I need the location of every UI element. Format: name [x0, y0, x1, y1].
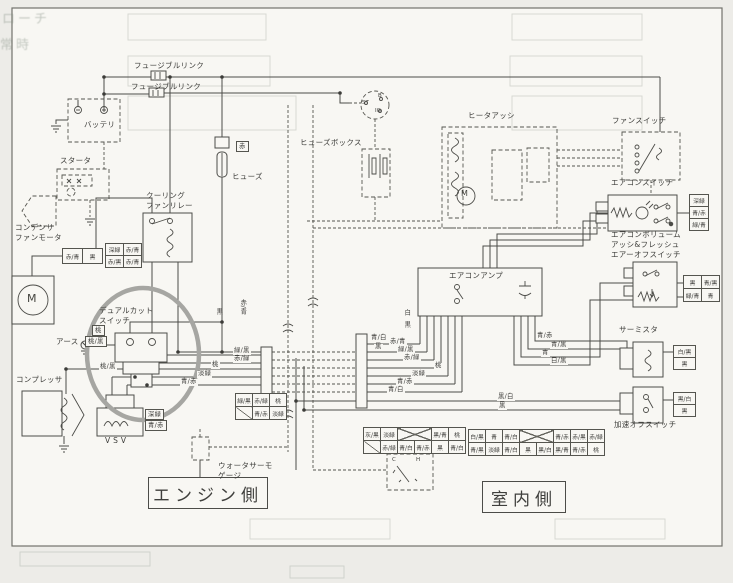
inline-connector-2 [356, 334, 367, 408]
connector-cell: 赤/青 [124, 244, 142, 256]
accel-off-switch-label: 加速オフスイッチ [614, 420, 676, 430]
thermistor-box [633, 342, 663, 377]
connector-cell: 赤/緑 [381, 441, 398, 454]
connector-cell: 桃 [588, 443, 605, 456]
wire-color-label: 青/白 [387, 387, 405, 394]
wire-color-label: 桃 [211, 362, 220, 369]
wire-color-label: 淡緑 [411, 371, 426, 378]
connector-cell: 深緑 [690, 195, 709, 207]
wire-color-label: 桃/黒 [99, 364, 117, 371]
connector-cell [236, 407, 253, 420]
wire-color-label: 黒 [374, 344, 383, 351]
connector-cell: 赤/緑 [588, 430, 605, 443]
left-harness-connector-table: 緑/黒赤/緑桃青/赤淡緑 [235, 393, 287, 420]
fusible-link-1-label: フュージブルリンク [134, 61, 204, 71]
connector-cell: 黒/青 [554, 443, 571, 456]
connector-cell: 青/白 [398, 441, 415, 454]
wire-color-label: 赤/緑 [233, 356, 251, 363]
wire-color-label: 黒 [498, 403, 507, 410]
inline-connector-1 [261, 347, 272, 394]
wire-color-label: 深緑 [145, 409, 164, 420]
ignition-terminal-st: ST [362, 100, 369, 107]
fusible-link-1 [151, 71, 166, 80]
accel-off-switch-connector: 黒/白黒 [673, 392, 696, 417]
connector-cell [364, 441, 381, 454]
connector-cell: 黒 [520, 443, 537, 456]
bleed-through-text: 常時 [0, 38, 32, 55]
connector-cell [398, 428, 432, 441]
ac-volume-switch-box [633, 262, 677, 307]
wire-color-label: 青/赤 [180, 379, 198, 386]
wire-color-label: 青/白 [370, 335, 388, 342]
blower-motor-m: M [461, 189, 468, 199]
wire-color-label: 赤/青 [389, 339, 407, 346]
connector-cell: 青 [486, 430, 503, 443]
connector-cell: 青/白 [503, 430, 520, 443]
cooling-fan-relay-connector: 深緑赤/青赤/黒赤/青 [105, 243, 142, 268]
connector-cell: 赤/黒 [571, 430, 588, 443]
connector-cell: 桃 [449, 428, 466, 441]
connector-cell: 青/赤 [415, 441, 432, 454]
compressor-label: コンプレッサ [16, 375, 63, 385]
ac-amp-label: エアコンアンプ [449, 271, 503, 281]
connector-cell: 赤/青 [124, 256, 142, 268]
connector-cell: 黒/青 [432, 428, 449, 441]
wire-color-label: 赤/青 [239, 299, 245, 315]
bottom-left-connector-table: 灰/黒淡緑黒/青桃赤/緑青/白青/赤黒青/白 [363, 427, 466, 454]
connector-cell: 白/黒 [674, 346, 696, 358]
connector-cell: 青/赤 [690, 207, 709, 219]
bleed-through-text: ローチ [2, 12, 50, 29]
ignition-terminal-b: B [378, 93, 382, 100]
fuse-label: ヒューズ [232, 172, 263, 182]
wire-color-label: 黒 [403, 321, 409, 328]
connector-cell: 白/黒 [469, 430, 486, 443]
cooling-fan-relay-label: クーリング ファンリレー [146, 191, 193, 211]
connector-cell: 赤/緑 [253, 394, 270, 407]
connector-cell: 赤/青 [63, 249, 83, 264]
connector-cell: 青/赤 [253, 407, 270, 420]
ac-switch-connector: 深緑青/赤緑/青 [689, 194, 709, 231]
connector-cell: 黒 [684, 276, 702, 289]
connector-cell: 灰/黒 [364, 428, 381, 441]
ac-switch-label: エアコンスイッチ [611, 178, 673, 188]
connector-cell: 黒 [83, 249, 103, 264]
page-border [12, 8, 722, 546]
connector-cell [520, 430, 554, 443]
bottom-right-connector-table: 白/黒青青/白青/赤赤/黒赤/緑青/黒淡緑青/白黒黒/白黒/青青/赤桃 [468, 429, 605, 456]
fuse-holder [215, 137, 229, 148]
interior-side-caption: 室内側 [482, 481, 566, 513]
wire-color-label: 緑/黒 [397, 347, 415, 354]
starter-label: スタータ [60, 156, 91, 166]
wire-color-label: 赤 [236, 141, 249, 152]
dual-cut-switch-body [115, 333, 167, 362]
dual-cut-switch-label: デュアルカット スイッチ [99, 306, 153, 326]
ac-volume-connector: 黒青/黒緑/青青 [683, 275, 720, 302]
condenser-motor-m: M [27, 292, 37, 306]
accel-off-switch-box [633, 387, 663, 423]
earth-label: アース [56, 337, 79, 347]
ignition-terminal-ig: IG [375, 108, 381, 115]
wire-color-label: 黒 [215, 308, 221, 315]
connector-cell: 淡緑 [381, 428, 398, 441]
compressor-box [22, 391, 62, 436]
wire-color-label: 青/黒 [550, 342, 568, 349]
connector-cell: 緑/黒 [236, 394, 253, 407]
connector-cell: 黒/白 [674, 393, 696, 405]
wire-color-label: 青/赤 [536, 333, 554, 340]
thermistor-connector: 白/黒黒 [673, 345, 696, 370]
gauge-hot-mark: H [416, 457, 420, 464]
connector-cell: 青/赤 [554, 430, 571, 443]
wire-color-label: 青/赤 [145, 420, 167, 431]
engine-side-caption: エンジン側 [148, 477, 268, 509]
vsv-label: V S V [105, 436, 126, 446]
wire-color-label: 白/黒 [550, 358, 568, 365]
connector-cell: 黒 [674, 358, 696, 370]
fusible-link-2-label: フュージブルリンク [131, 82, 201, 92]
gauge-cold-mark: C [392, 457, 396, 464]
wire-color-label: 青/赤 [396, 379, 414, 386]
wire-color-label: 青 [541, 350, 550, 357]
fuse-box-label: ヒューズボックス [300, 138, 362, 148]
wire-color-label: 桃 [434, 363, 443, 370]
connector-cell: 黒/白 [537, 443, 554, 456]
diagram-canvas [0, 0, 733, 583]
connector-cell: 青/白 [503, 443, 520, 456]
condenser-fan-motor-connector: 赤/青黒 [62, 248, 103, 264]
wire-color-label: 淡緑 [197, 371, 212, 378]
connector-cell: 黒 [674, 405, 696, 417]
connector-cell: 淡緑 [486, 443, 503, 456]
thermistor-label: サーミスタ [619, 325, 658, 335]
connector-cell: 黒 [432, 441, 449, 454]
ac-volume-switch-label: エアコンボリューム アッシ&フレッシュ エアーオフスイッチ [611, 230, 681, 259]
battery-label: バッテリ [84, 120, 115, 130]
connector-cell: 赤/黒 [106, 256, 124, 268]
water-thermo-gauge-label: ウォータサーモ ゲージ [218, 461, 273, 481]
heater-assy-label: ヒータアッシ [468, 111, 515, 121]
condenser-fan-motor-label: コンデンサ ファンモータ [15, 223, 62, 243]
wiring-diagram-page: エンジン側 室内側 const data = JSON.parse(docume… [0, 0, 733, 583]
wire-color-label: 白 [403, 309, 409, 316]
connector-cell: 青 [702, 289, 720, 302]
wire-color-label: 桃 [92, 325, 105, 336]
connector-cell: 青/黒 [702, 276, 720, 289]
connector-cell: 青/白 [449, 441, 466, 454]
connector-cell: 青/黒 [469, 443, 486, 456]
connector-cell: 深緑 [106, 244, 124, 256]
connector-cell: 桃 [270, 394, 287, 407]
fan-switch-label: ファンスイッチ [612, 116, 666, 126]
connector-cell: 青/赤 [571, 443, 588, 456]
wire-color-label: 黒/白 [497, 394, 515, 401]
wire-color-label: 桃/黒 [85, 336, 107, 347]
connector-cell: 淡緑 [270, 407, 287, 420]
connector-cell: 緑/青 [684, 289, 702, 302]
wire-color-label: 赤/緑 [403, 355, 421, 362]
connector-cell: 緑/青 [690, 219, 709, 231]
wire-color-label: 緑/黒 [233, 348, 251, 355]
